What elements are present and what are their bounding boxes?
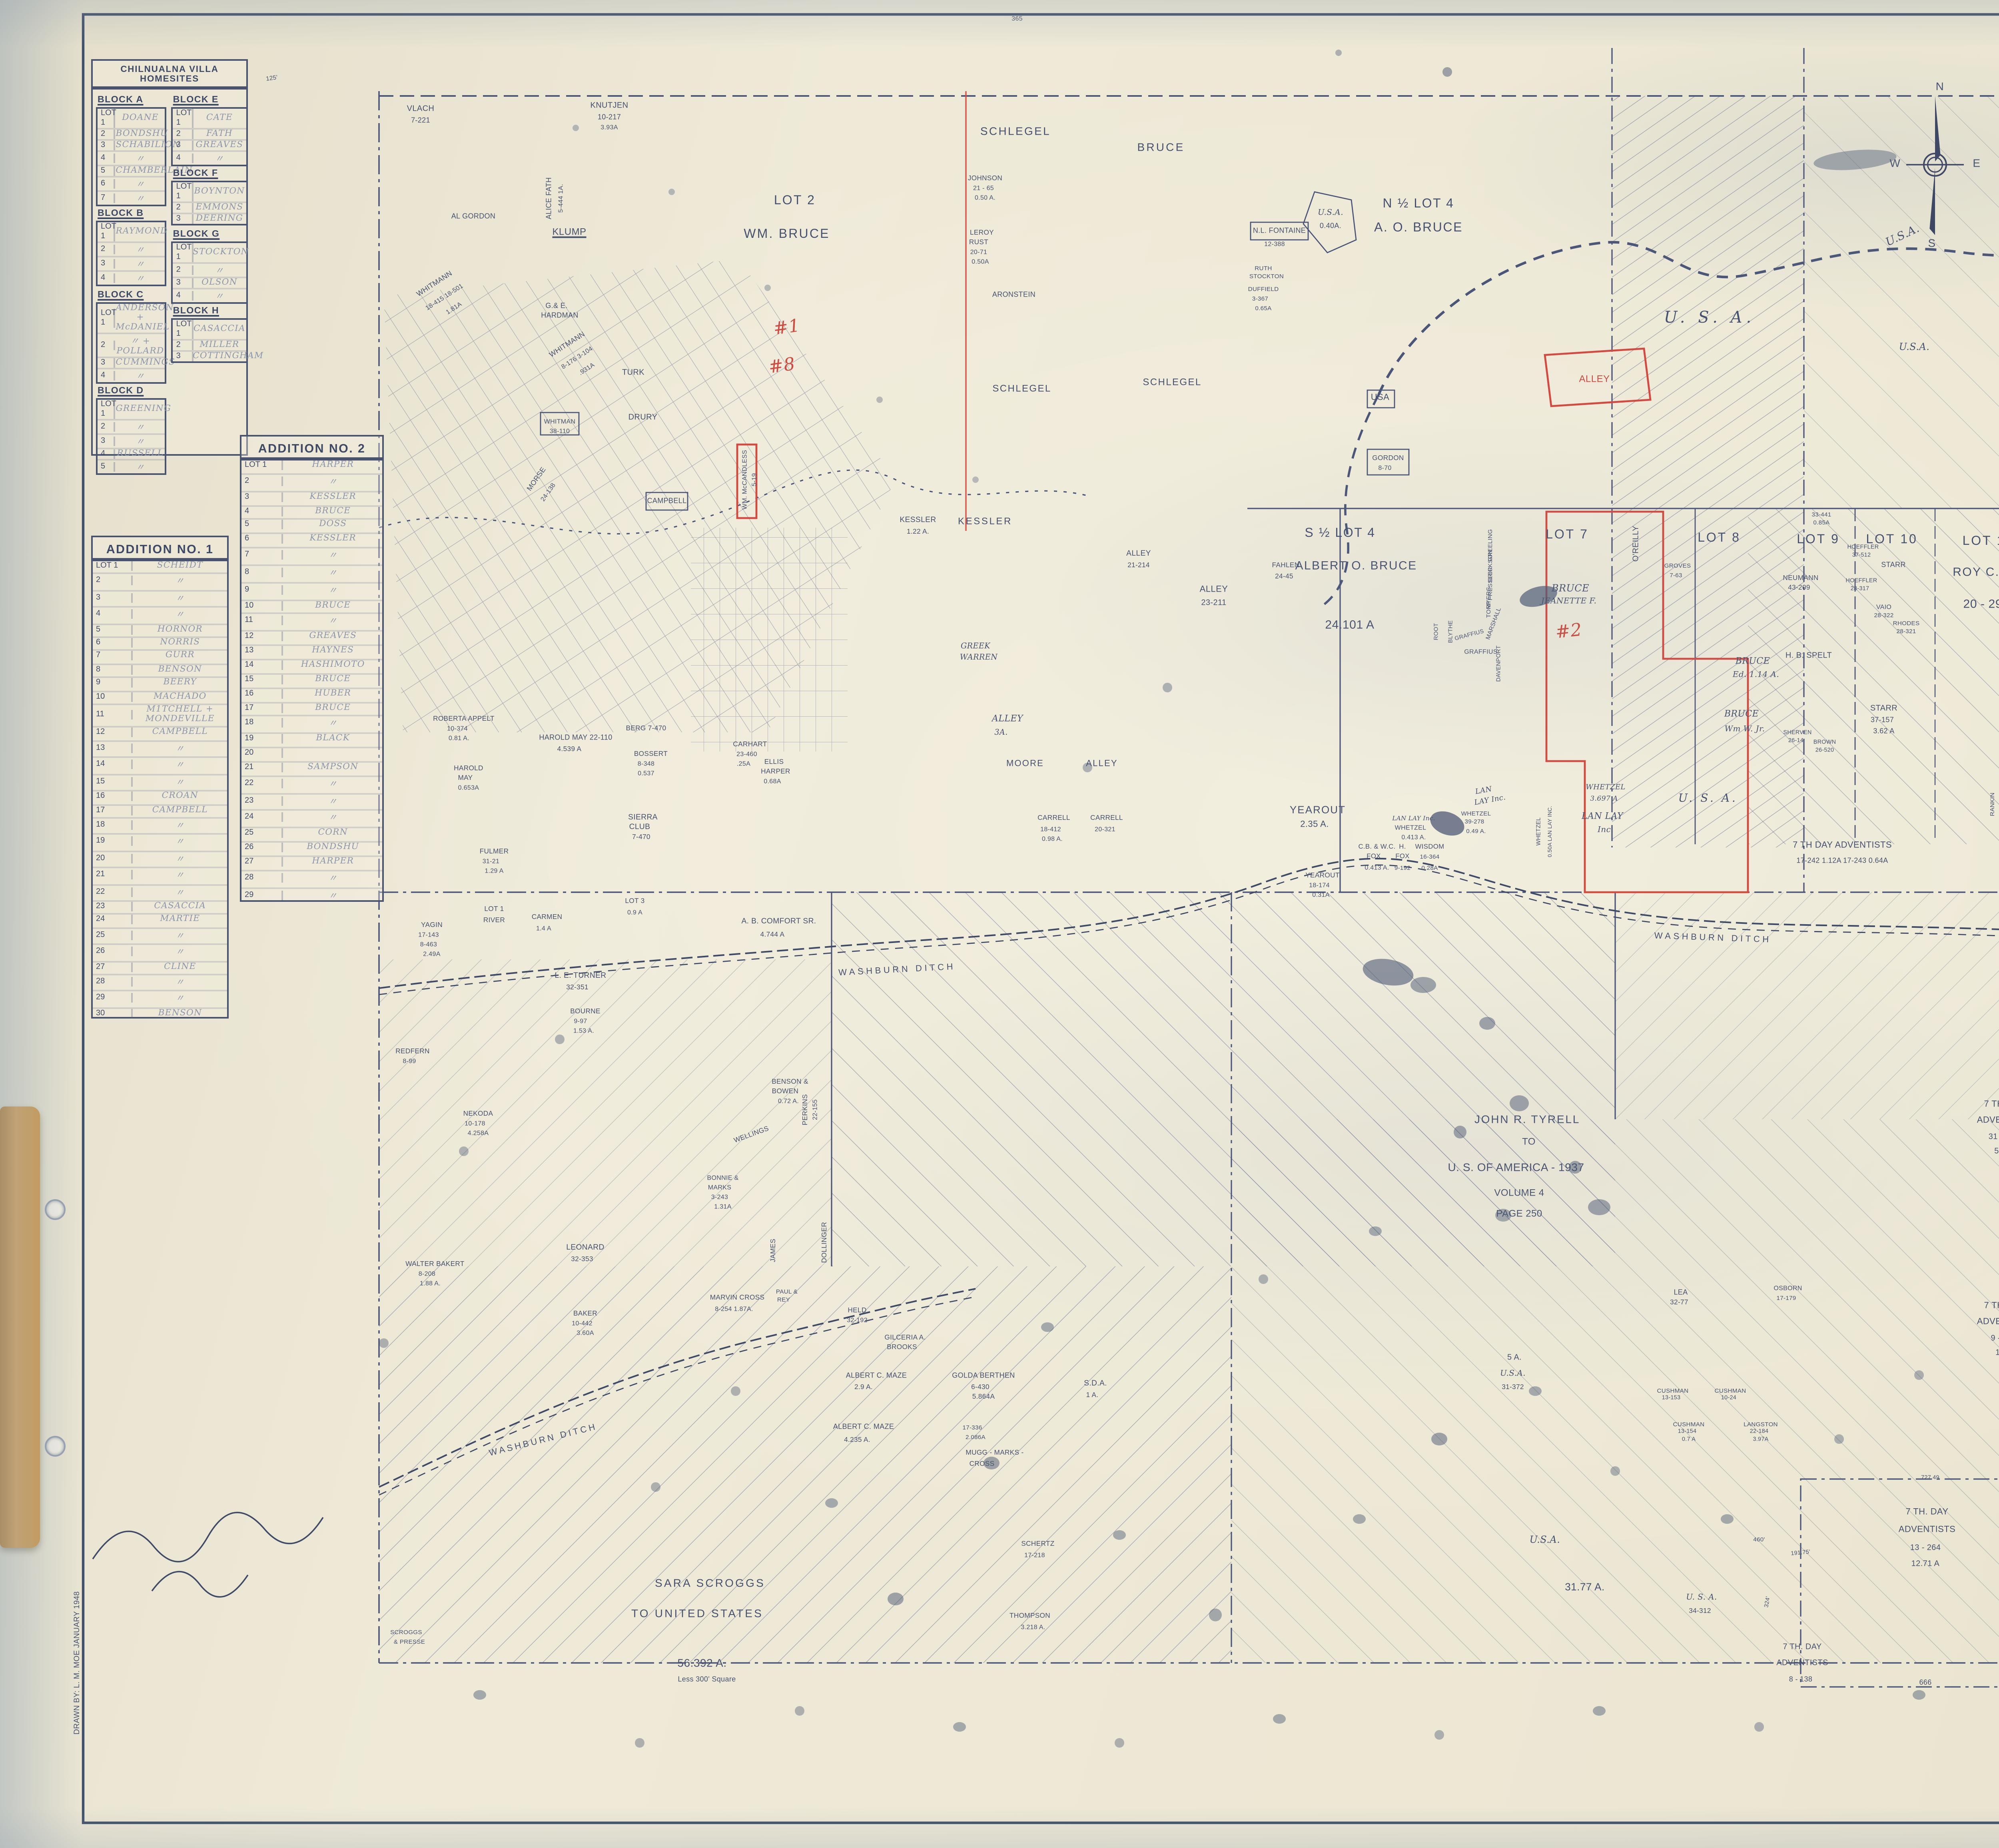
map-label: LOT 2 (774, 195, 816, 208)
lot-number: LOT 1 (173, 182, 193, 201)
block-group: BLOCK ELOT 1CATE2FATH3GREAVES4〃 (172, 95, 248, 165)
map-label: 7-221 (411, 118, 430, 126)
map-label: 6-430 (971, 1384, 990, 1391)
map-label: ROOT (1434, 623, 1440, 640)
map-label: KLUMP (552, 228, 586, 238)
table-row: 7〃 (98, 189, 165, 204)
map-label: 4.539 A (557, 746, 582, 754)
owner-name: 〃 (116, 257, 165, 270)
lot-number: LOT 1 (98, 308, 116, 327)
map-label: 1.53 A. (573, 1028, 594, 1035)
map-label: WHETZEL (1537, 817, 1543, 846)
map-label: BENSON & (772, 1079, 808, 1086)
lot-number: 18 (241, 718, 284, 728)
owner-name: CHAMBERLAIN (116, 165, 165, 175)
map-label: WM. BRUCE (744, 228, 830, 242)
map-label: 32-351 (566, 985, 589, 992)
table-row: 14HASHIMOTO (241, 659, 382, 670)
map-label: 0.65A (1255, 305, 1271, 312)
map-label: REDFERN (395, 1049, 430, 1056)
map-label: 0.81 A. (449, 736, 469, 742)
map-label: RANKIN (1989, 792, 1996, 816)
map-label: ALLEY (1086, 761, 1118, 770)
owner-name: BONDSHU (116, 129, 165, 138)
map-label: ARONSTEIN (992, 292, 1035, 300)
block-label: BLOCK A (98, 95, 167, 105)
table-row: 3〃 (98, 433, 165, 448)
map-label: Less 300' Square (678, 1677, 736, 1685)
map-label: 9-97 (574, 1019, 587, 1025)
map-label: DOLLINGER (822, 1222, 829, 1263)
map-label: FOX (1367, 853, 1381, 861)
owner-name: 〃 (133, 885, 227, 898)
lot-number: 28 (93, 977, 133, 987)
lot-number: 6 (93, 638, 133, 648)
map-label: JOHN R. TYRELL (1474, 1115, 1580, 1126)
table-row: 10MACHADO (93, 690, 227, 702)
map-label: 32-192 (847, 1318, 868, 1324)
table-row: 5DOSS (241, 519, 382, 530)
map-label: BOWEN (772, 1088, 799, 1096)
table-row: 2〃 (241, 473, 382, 487)
table-row: 2〃 (93, 573, 227, 588)
map-label: 17-336 (962, 1425, 982, 1431)
map-label: ROBERTA APPELT (433, 716, 495, 723)
map-label: 5.864A (972, 1394, 995, 1401)
map-label: OSBORN (1774, 1286, 1802, 1292)
lot-number: 4 (173, 153, 193, 162)
owner-name: STOCKTON (193, 247, 246, 257)
hatch-scroggs (379, 1266, 1231, 1663)
lot-number: 23 (93, 902, 133, 911)
lot-number: 4 (98, 370, 116, 380)
map-label: STARR (1881, 562, 1906, 570)
block-label: BLOCK E (173, 95, 248, 105)
map-label: SCROGGS (390, 1629, 422, 1636)
owner-name: 〃 (284, 717, 382, 730)
table-row: 16HUBER (241, 687, 382, 698)
punch-hole (45, 1436, 66, 1457)
owner-name: 〃 (133, 608, 227, 621)
lot-number: LOT 1 (173, 242, 193, 261)
owner-name: 〃 (193, 289, 246, 301)
table-row: 4〃 (98, 367, 165, 381)
map-label: ELLIS (764, 759, 784, 766)
map-label: 0.537 (638, 771, 654, 777)
owner-name: 〃 (133, 575, 227, 588)
map-label: L. E. TURNER (555, 973, 606, 981)
owner-name: SAMPSON (284, 763, 382, 772)
map-label: 7-63 (1670, 572, 1682, 579)
table-row: 20 (241, 747, 382, 758)
owner-name: 〃 (133, 775, 227, 788)
table-row: 18〃 (241, 715, 382, 730)
map-label: CUSHMAN (1673, 1421, 1705, 1428)
block-label: BLOCK D (98, 387, 167, 397)
map-label: 5-444 1A. (558, 184, 565, 213)
lot-number: 3 (173, 352, 193, 361)
map-label: 8-70 (1378, 465, 1391, 472)
chilnualna-homesites-table: CHILNUALNA VILLA HOMESITES BLOCK ALOT 1D… (91, 59, 248, 456)
map-label: 39-278 (1464, 819, 1484, 825)
owner-name: 〃 (284, 811, 382, 824)
map-label: 23-211 (1201, 600, 1226, 609)
map-label: 0.413 A. (1365, 865, 1389, 872)
table-row: 7GURR (93, 650, 227, 661)
map-label: BOURNE (570, 1009, 600, 1016)
punch-hole (45, 1199, 66, 1220)
map-label: ADVENTISTS (1899, 1527, 1956, 1536)
paper-sheet: CHILNUALNA VILLA HOMESITES BLOCK ALOT 1D… (0, 0, 1999, 1848)
map-label: CROSS (970, 1461, 995, 1468)
owner-name: SCHABILION (116, 140, 165, 150)
lot-number: 15 (241, 674, 284, 684)
lot-number: 23 (241, 795, 284, 805)
map-label: YAGIN (421, 922, 443, 929)
map-label: NEKODA (463, 1111, 493, 1118)
map-label: BROWN (1813, 740, 1836, 746)
owner-name: MILLER (193, 341, 246, 350)
map-label: 10-24 (1721, 1396, 1736, 1402)
owner-name: BRUCE (284, 600, 382, 610)
table-title: ADDITION NO. 2 (241, 437, 382, 461)
map-label: SCHERTZ (1021, 1541, 1054, 1548)
owner-name: SCHEIDT (133, 561, 227, 571)
owner-name: 〃 (116, 369, 165, 381)
map-label: 3.218 A. (1021, 1625, 1045, 1631)
owner-name: 〃 (193, 263, 246, 276)
map-label: 4.235 A. (844, 1437, 870, 1444)
map-label: THOMPSON (1009, 1613, 1050, 1620)
map-label: 1.31A (714, 1204, 731, 1211)
map-label: CARRELL (1090, 815, 1123, 822)
lot-number: 20 (93, 853, 133, 863)
map-label: HARDMAN (541, 313, 579, 321)
owner-name: BOYNTON (193, 187, 246, 197)
owner-name: KESSLER (284, 492, 382, 502)
owner-name: DEERING (193, 214, 246, 224)
owner-name: BRUCE (284, 703, 382, 712)
owner-name: GREAVES (193, 140, 246, 150)
map-label: BERG 7-470 (626, 726, 666, 733)
map-label: SCHLEGEL (992, 385, 1051, 395)
map-label: LOT 7 (1546, 529, 1589, 542)
map-label: U. S. A. (1664, 311, 1756, 328)
table-row: 21SAMPSON (241, 761, 382, 772)
table-row: 13HAYNES (241, 645, 382, 656)
map-label: FAHLEN (1272, 562, 1300, 570)
lot-number: 17 (93, 805, 133, 815)
owner-name: NORRIS (133, 638, 227, 648)
lot-number: LOT 1 (98, 108, 116, 127)
table-row: 15〃 (93, 773, 227, 788)
owner-name: 〃 (284, 889, 382, 901)
map-label: BOSSERT (634, 751, 668, 758)
map-label: 17-218 (1024, 1553, 1045, 1559)
map-label: C.B. & W.C. (1358, 844, 1395, 851)
lot-number: 21 (241, 763, 284, 772)
map-label: WARREN (960, 655, 998, 663)
map-label: GILCERIA A. (884, 1335, 926, 1342)
map-label: 34-312 (1689, 1608, 1711, 1615)
map-label: 4.744 A (760, 932, 785, 939)
map-label: 22-184 (1750, 1429, 1769, 1435)
lot-number: 13 (241, 646, 284, 656)
lot-number: 7 (93, 652, 133, 661)
owner-name: 〃 (133, 929, 227, 941)
map-label: ALLEY (992, 716, 1023, 726)
lot-number: LOT 1 (98, 222, 116, 241)
owner-name: 〃 (284, 871, 382, 884)
map-label: 5 A. (1507, 1355, 1522, 1364)
map-label: 10-178 (465, 1121, 485, 1128)
map-label: LOT 3 (625, 898, 644, 905)
map-label: 26-520 (1815, 748, 1834, 754)
map-label: 0.31A (1312, 892, 1329, 899)
map-label: JEANETTE F. (1541, 599, 1597, 607)
map-label: 1.29 A (485, 868, 503, 875)
map-label: ADVENTISTS (1776, 1661, 1828, 1669)
map-label: O'REILLY (1634, 526, 1642, 562)
map-label: S.D.A. (1084, 1381, 1107, 1389)
map-label: 8-463 (420, 942, 437, 949)
lot-number: 5 (98, 462, 116, 472)
table-row: 3GREAVES (173, 138, 246, 150)
table-row: LOT 1STOCKTON (173, 242, 246, 261)
lot-number: 3 (173, 214, 193, 224)
table-row: 7〃 (241, 547, 382, 561)
map-label: ADVENTISTS (1977, 1319, 1999, 1328)
table-row: 4RUSSELL (98, 448, 165, 459)
table-row: 2EMMONS (173, 201, 246, 213)
map-label: ALBERT C. MAZE (833, 1424, 894, 1432)
map-label: 0.50 A. (975, 195, 996, 202)
map-label: LEONARD (566, 1245, 604, 1253)
owner-name: M1TCHELL + MONDEVILLE (133, 705, 227, 724)
block-group: BLOCK HLOT 1CASACCIA2MILLER3COTTINGHAM (172, 307, 248, 363)
table-row: 29〃 (241, 887, 382, 901)
owner-name: CATE (193, 113, 246, 122)
table-row: 4〃 (98, 150, 165, 164)
lot-number: 3 (98, 357, 116, 367)
map-label: BRUCE (1724, 712, 1759, 721)
table-row: 21〃 (93, 867, 227, 881)
map-label: 56.392 A. (677, 1659, 726, 1670)
hatch-mid (1615, 892, 1999, 1119)
owner-name: CLINE (133, 962, 227, 971)
map-label: 0.85A (1813, 520, 1829, 526)
map-label: 8-208 (419, 1271, 436, 1278)
table-row: 13〃 (93, 740, 227, 755)
owner-name: 〃 (133, 869, 227, 881)
map-label: CUSHMAN (1715, 1388, 1746, 1394)
map-label: Wm W. Jr. (1725, 727, 1765, 735)
table-row: 5HORNOR (93, 623, 227, 634)
table-row: 23CASACCIA (93, 900, 227, 911)
block-group: BLOCK ALOT 1DOANE2BONDSHU3SCHABILION4〃5C… (96, 95, 167, 205)
lot-number: LOT 1 (173, 320, 193, 339)
map-label: 3.697 A (1590, 797, 1618, 805)
table-row: LOT 1ANDERSON + McDANIEL (98, 303, 165, 332)
lot-number: LOT 1 (98, 400, 116, 419)
table-row: 19BLACK (241, 733, 382, 744)
lot-number: 8 (93, 665, 133, 674)
map-label: HOEFFLER (1847, 545, 1879, 551)
map-label: 10 A (1995, 1350, 1999, 1359)
map-label: 7 TH DAY ADVENTISTS (1793, 843, 1892, 852)
owner-name: 〃 (116, 435, 165, 448)
table-row: 8〃 (241, 564, 382, 579)
lot-number: 8 (241, 568, 284, 577)
map-label: 1.4 A (536, 926, 551, 933)
table-row: 2BONDSHU (98, 127, 165, 138)
table-row: 28〃 (93, 974, 227, 988)
map-label: 16-364 (1420, 854, 1439, 860)
map-label: 0.68A (764, 779, 781, 785)
map-label: KESSLER (958, 518, 1012, 528)
owner-name: CASACCIA (193, 325, 246, 334)
map-label: U. S. OF AMERICA - 1937 (1448, 1163, 1584, 1174)
lot-number: 2 (173, 203, 193, 213)
table-row: 12CAMPBELL (93, 727, 227, 738)
table-row: LOT 1BOYNTON (173, 182, 246, 201)
map-label: 31.77 A. (1565, 1584, 1605, 1595)
map-label: TORP (1486, 600, 1492, 618)
table-row: 3COTTINGHAM (173, 350, 246, 361)
table-row: 27CLINE (93, 960, 227, 971)
map-label: 7 TH. DAY (1984, 1303, 1999, 1312)
lot-number: LOT 1 (93, 561, 133, 571)
map-label: LANGSTON (1744, 1421, 1778, 1428)
table-row: 9〃 (241, 582, 382, 596)
map-label: SHERVEN (1783, 731, 1811, 737)
compass-n: N (1936, 82, 1944, 94)
table-title: CHILNUALNA VILLA HOMESITES (93, 61, 246, 90)
map-label: 0.98 A. (1042, 836, 1063, 843)
map-label: Ed. 1.14 A. (1733, 672, 1779, 681)
compass-s: S (1928, 239, 1935, 250)
map-label: LEROY (970, 230, 994, 237)
lot-number: 14 (93, 760, 133, 770)
table-row: LOT 1RAYMOND (98, 222, 165, 241)
folded-backing-strip (0, 1106, 40, 1548)
lot-number: 4 (98, 273, 116, 283)
lot-number: 2 (173, 129, 193, 138)
hatch-lot8 (1748, 508, 1999, 844)
lot-number: 3 (98, 259, 116, 269)
owner-name: 〃 (116, 191, 165, 204)
map-label: LEA (1674, 1290, 1688, 1298)
map-label: 5.1 A (1994, 1149, 1999, 1157)
owner-name: 〃 (116, 177, 165, 189)
map-label: 43-209 (1788, 585, 1810, 592)
map-label: 2.086A (966, 1434, 986, 1441)
map-label: 460' (1753, 1537, 1765, 1543)
map-label: RUTH (1255, 265, 1272, 272)
scanned-map-viewport: CHILNUALNA VILLA HOMESITES BLOCK ALOT 1D… (0, 0, 1999, 1848)
owner-name: 〃 (116, 421, 165, 433)
map-label: & PRESSE (394, 1639, 425, 1645)
map-label: 31-21 (483, 859, 500, 865)
table-row: 2〃 + POLLARD (98, 332, 165, 356)
owner-name: RUSSELL (116, 449, 165, 459)
lot-number: 9 (93, 678, 133, 688)
map-label: U. S. A. (1686, 1595, 1717, 1603)
owner-name: BLACK (284, 734, 382, 744)
map-label: 3-243 (711, 1194, 728, 1201)
owner-name: 〃 (284, 777, 382, 789)
map-label: 31-372 (1502, 1384, 1524, 1391)
map-label: A. O. BRUCE (1374, 222, 1463, 235)
map-label: H. (1399, 844, 1406, 851)
map-label: WHETZEL (1395, 825, 1426, 832)
table-row: 10BRUCE (241, 599, 382, 610)
map-label: 0.72 A. (778, 1098, 799, 1105)
owner-name: 〃 (284, 474, 382, 487)
lot-number: 29 (93, 994, 133, 1003)
map-label: RHODES (1893, 620, 1920, 627)
map-label: 31 - 562 (1989, 1134, 1999, 1143)
map-label: 2.49A (423, 951, 440, 958)
map-label: A. B. COMFORT SR. (741, 919, 816, 927)
map-label: 7-470 (632, 834, 650, 841)
map-label: 0.7 A (1682, 1437, 1696, 1443)
map-label: 0.50A LAN LAY INC. (1548, 806, 1554, 857)
map-label: 0.40A. (1320, 223, 1341, 231)
map-label: 8-348 (638, 761, 655, 768)
map-label: 3.93A (600, 125, 618, 132)
owner-name: ANDERSON + McDANIEL (116, 303, 165, 332)
lot-number: 4 (241, 506, 284, 516)
map-label: U. S. A. (1678, 793, 1738, 805)
map-label: 0.9 A (627, 910, 642, 917)
map-label: GROVES (1664, 563, 1691, 569)
map-label: BRUCE (1552, 585, 1589, 595)
map-label: WHETZEL (1461, 811, 1491, 817)
table-row: 22〃 (93, 883, 227, 898)
table-row: 3〃 (93, 590, 227, 604)
map-label: 28-317 (1851, 587, 1869, 593)
map-label: 0.28A (1421, 865, 1438, 871)
lot-number: 26 (241, 843, 284, 852)
lot-number: 25 (93, 930, 133, 940)
map-label: 33-441 (1811, 512, 1831, 518)
owner-name: GREENING (116, 405, 165, 414)
map-label: JAMES (770, 1238, 778, 1262)
map-label: 38-110 (550, 429, 570, 435)
map-label: PERKINS (802, 1094, 810, 1125)
block-label: BLOCK B (98, 209, 167, 219)
map-label: WALTER BAKERT (405, 1261, 464, 1268)
map-label: #2 (1554, 621, 1583, 642)
owner-name: 〃 (133, 591, 227, 604)
table-row: 26BONDSHU (241, 841, 382, 852)
table-row: 4〃 (93, 606, 227, 621)
table-row: 6〃 (98, 175, 165, 189)
owner-name: CUMMINGS (116, 357, 165, 367)
table-row: 23〃 (241, 792, 382, 807)
map-label: 13-154 (1678, 1429, 1697, 1435)
lot-number: 16 (241, 689, 284, 698)
map-label: AL GORDON (451, 214, 496, 221)
map-label: DUFFIELD (1248, 286, 1279, 293)
drawn-by: DRAWN BY: L. M. MOE JANUARY 1948 (74, 1591, 82, 1735)
map-label: TO UNITED STATES (631, 1609, 763, 1621)
table-row: 11M1TCHELL + MONDEVILLE (93, 704, 227, 724)
map-label: 20 - 295 (1963, 598, 1999, 611)
owner-name: HORNOR (133, 625, 227, 634)
table-row: 2〃 (98, 241, 165, 256)
